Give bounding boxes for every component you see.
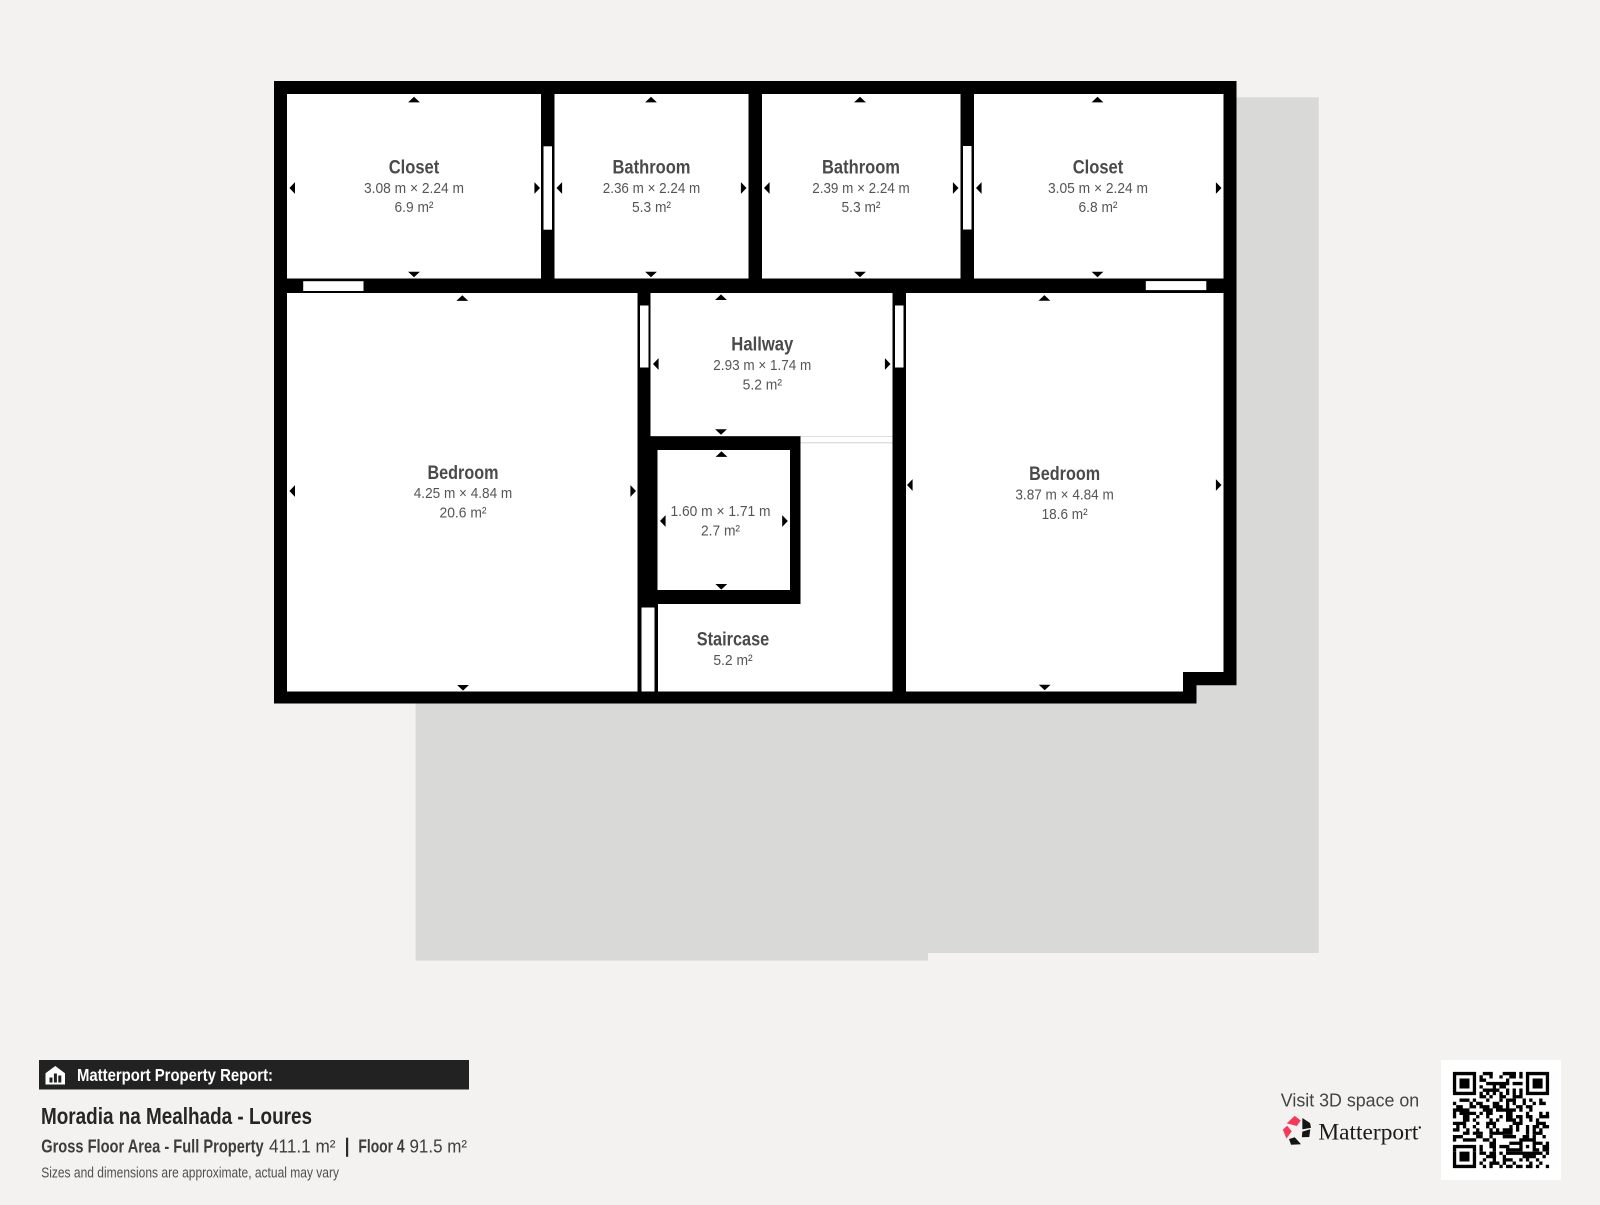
svg-text:411.1 m²: 411.1 m² [269, 1136, 336, 1156]
svg-text:5.3 m²: 5.3 m² [632, 199, 671, 216]
svg-text:2.7 m²: 2.7 m² [701, 522, 740, 539]
svg-text:Closet: Closet [389, 157, 440, 178]
svg-text:6.9 m²: 6.9 m² [395, 199, 434, 216]
svg-text:Gross Floor Area - Full Proper: Gross Floor Area - Full Property [41, 1136, 263, 1156]
svg-text:Staircase: Staircase [697, 630, 770, 651]
svg-text:Matterport: Matterport [1318, 1120, 1419, 1145]
svg-text:2.93 m × 1.74 m: 2.93 m × 1.74 m [713, 357, 811, 374]
svg-text:Bedroom: Bedroom [1029, 464, 1100, 485]
svg-text:5.3 m²: 5.3 m² [842, 199, 881, 216]
svg-text:3.87 m × 4.84 m: 3.87 m × 4.84 m [1015, 487, 1113, 504]
svg-text:5.2 m²: 5.2 m² [713, 652, 752, 669]
svg-text:Sizes and dimensions are appro: Sizes and dimensions are approximate, ac… [41, 1164, 339, 1181]
svg-text:Bathroom: Bathroom [822, 157, 900, 178]
svg-text:1.60 m × 1.71 m: 1.60 m × 1.71 m [671, 503, 771, 520]
svg-text:18.6 m²: 18.6 m² [1042, 506, 1088, 523]
svg-text:Moradia na Mealhada - Loures: Moradia na Mealhada - Loures [41, 1103, 312, 1129]
svg-text:Bathroom: Bathroom [613, 157, 691, 178]
svg-text:20.6 m²: 20.6 m² [440, 505, 487, 522]
svg-text:Hallway: Hallway [731, 335, 793, 356]
svg-text:6.8 m²: 6.8 m² [1079, 199, 1118, 216]
svg-text:5.2 m²: 5.2 m² [743, 376, 782, 393]
svg-text:Matterport Property Report:: Matterport Property Report: [77, 1065, 273, 1085]
svg-text:4.25 m × 4.84 m: 4.25 m × 4.84 m [414, 485, 513, 502]
svg-text:Bedroom: Bedroom [428, 463, 499, 484]
svg-text:Floor 4: Floor 4 [358, 1136, 404, 1156]
svg-text:3.08 m × 2.24 m: 3.08 m × 2.24 m [364, 180, 464, 197]
svg-text:Visit 3D space on: Visit 3D space on [1281, 1089, 1419, 1110]
svg-text:2.36 m × 2.24 m: 2.36 m × 2.24 m [603, 180, 701, 197]
svg-text:2.39 m × 2.24 m: 2.39 m × 2.24 m [812, 180, 910, 197]
svg-text:3.05 m × 2.24 m: 3.05 m × 2.24 m [1048, 180, 1148, 197]
svg-text:91.5 m²: 91.5 m² [410, 1136, 468, 1156]
svg-text:Closet: Closet [1073, 157, 1124, 178]
